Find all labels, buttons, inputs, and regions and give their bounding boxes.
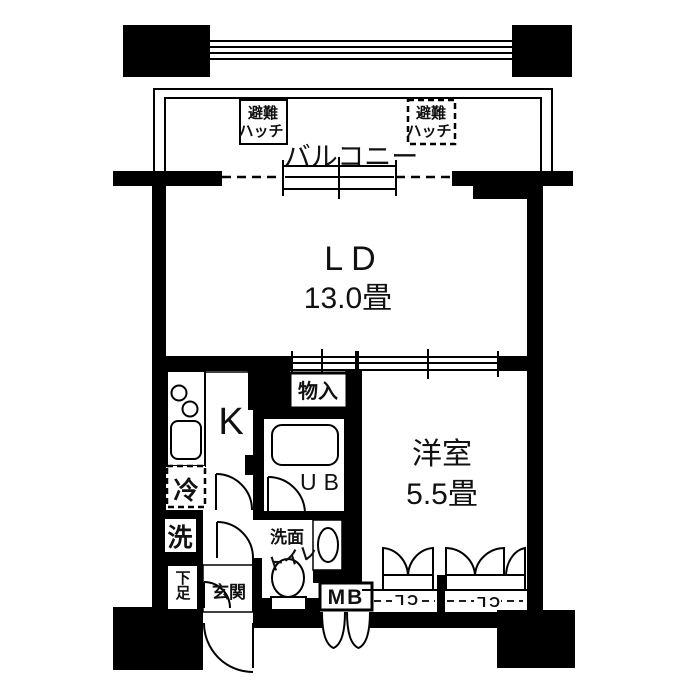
wall-top-left <box>113 171 222 186</box>
pillar-bottom-left <box>113 607 203 670</box>
washroom-label: 洗面 <box>270 527 304 547</box>
wall-kitchen-bottom <box>162 510 203 518</box>
closet-right-label: CL <box>474 593 500 610</box>
toilet-tank <box>271 597 306 610</box>
western-room-size: 5.5畳 <box>406 478 478 511</box>
wall-bottom-right-seg <box>370 612 500 628</box>
wall-right <box>527 171 543 612</box>
wall-washer-shoes-divider <box>162 553 203 565</box>
entrance-label: 玄関 <box>212 582 246 602</box>
living-dining-label: LD <box>324 240 383 278</box>
front-door <box>204 623 253 672</box>
kitchen-door <box>216 474 252 510</box>
kitchen-label: K <box>218 401 243 443</box>
washbasin-bowl <box>318 528 338 562</box>
western-room-label: 洋室 <box>412 438 472 471</box>
meter-box-door <box>347 612 370 648</box>
wall-bottom-left-seg <box>253 612 322 628</box>
hatch-label-line2: ハッチ <box>406 123 451 140</box>
meter-box-door <box>322 612 345 648</box>
wall-corner-bulge <box>473 186 527 199</box>
wall-basin-bottom <box>313 570 345 583</box>
hatch-label-line1: 避難 <box>248 104 278 122</box>
evacuation-hatch-solid: 避難 ハッチ <box>238 100 287 144</box>
kitchen-counter <box>167 371 205 466</box>
pillar-bottom-right <box>497 610 575 668</box>
shoe-cabinet-label: 下足 <box>174 570 191 601</box>
wall-kitchen-right <box>248 356 262 410</box>
washroom-door <box>217 522 253 558</box>
hatch-label-line2: ハッチ <box>238 123 283 140</box>
wall-storage-left <box>262 366 290 410</box>
closet-left-label: CL <box>392 591 418 608</box>
pillar-top-right <box>512 25 572 77</box>
evacuation-hatch-dashed: 避難 ハッチ <box>406 100 455 144</box>
washer-label: 洗 <box>167 524 192 552</box>
wall-ld-bottom-right <box>499 356 543 371</box>
floor-plan: 避難 ハッチ 避難 ハッチ バルコニー <box>0 0 700 700</box>
balcony-structure: 避難 ハッチ 避難 ハッチ バルコニー <box>123 25 572 176</box>
hatch-label-line1: 避難 <box>416 104 446 122</box>
closet-left-bifold-door <box>383 548 433 590</box>
pillar-top-left <box>123 25 210 77</box>
living-dining-size: 13.0畳 <box>304 282 392 315</box>
balcony-railing <box>210 41 512 59</box>
unit-bath-label: UB <box>300 469 346 495</box>
wall-top-right <box>452 171 573 186</box>
meter-box-label: MB <box>328 586 365 609</box>
wall-closet-divider <box>437 575 445 612</box>
floor-plan-svg: 避難 ハッチ 避難 ハッチ バルコニー <box>0 0 700 700</box>
western-sliding-door <box>357 349 499 379</box>
storage-label: 物入 <box>298 379 338 403</box>
fridge-label: 冷 <box>173 476 198 505</box>
closet-right-bifold-door <box>446 548 525 590</box>
